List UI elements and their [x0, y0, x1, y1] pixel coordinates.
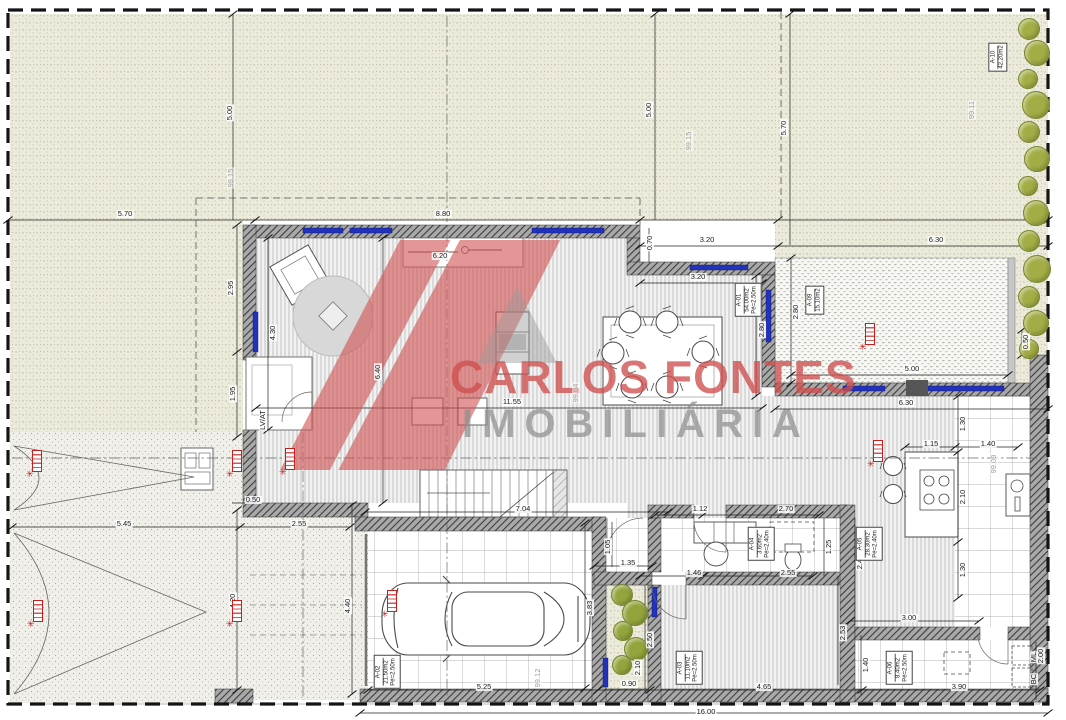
floor-plan-page: CARLOS FONTES IMOBILIÁRIA 5.005.005.7099…: [0, 0, 1066, 720]
floor-plan-drawing: [0, 0, 1066, 720]
